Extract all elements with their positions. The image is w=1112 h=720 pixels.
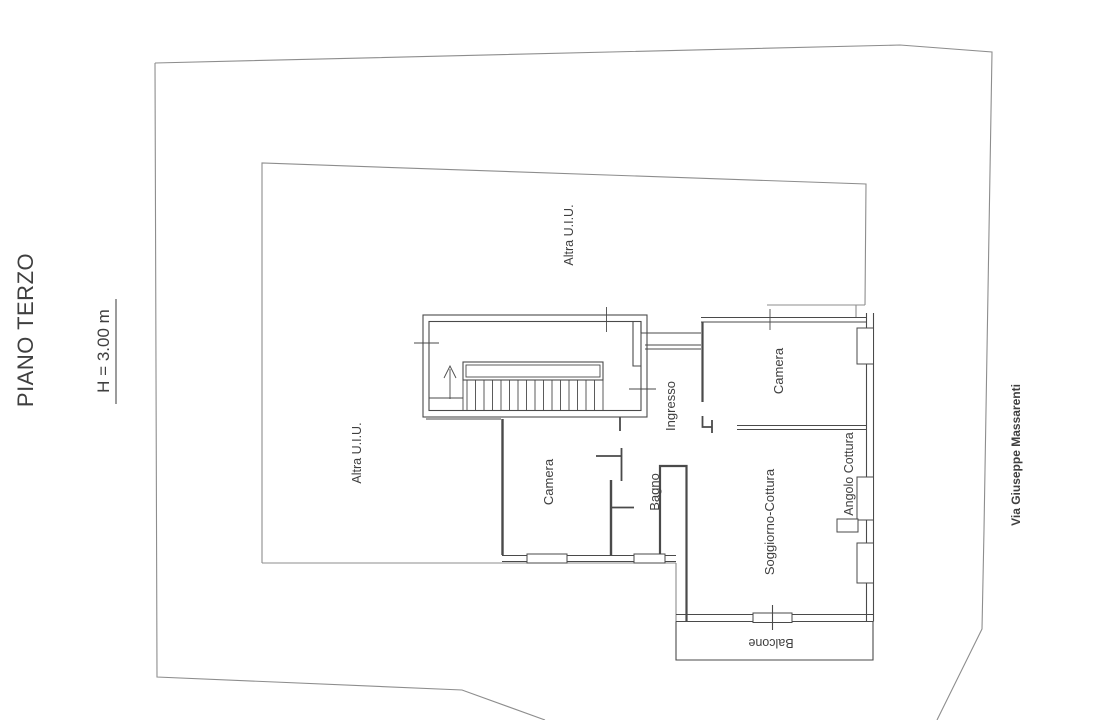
room-label-camera-middle: Camera — [541, 458, 556, 505]
window-bagno — [634, 554, 665, 563]
stairwell — [423, 315, 701, 417]
stair-treads — [467, 380, 603, 410]
height-note: H = 3.00 m — [94, 309, 113, 393]
window-soggiorno — [857, 543, 874, 583]
stair-landing-inner — [466, 365, 600, 377]
floor-plan-drawing: PIANO TERZO H = 3.00 m Altra U.I.U. Altr… — [0, 0, 1112, 720]
pilaster-angolo — [837, 519, 858, 532]
room-label-altra-uiu-left: Altra U.I.U. — [350, 422, 364, 483]
wall-camera-tr-bottom — [737, 426, 867, 430]
room-label-soggiorno-cottura: Soggiorno-Cottura — [762, 468, 777, 575]
room-label-ingresso: Ingresso — [663, 381, 678, 431]
street-label: Via Giuseppe Massarenti — [1009, 384, 1023, 526]
stair-direction-arrow — [444, 366, 456, 399]
room-label-angolo-cottura: Angolo Cottura — [842, 432, 856, 515]
ingresso-walls — [620, 345, 701, 431]
page-title: PIANO TERZO — [13, 253, 38, 407]
stair-left-compartment — [429, 380, 463, 410]
wall-soggiorno-left — [660, 466, 687, 622]
room-label-bagno: Bagno — [647, 473, 662, 511]
stairwell-step-wall — [641, 322, 701, 334]
room-label-balcone: Balcone — [748, 636, 793, 650]
stairwell-notch — [633, 322, 641, 367]
wall-camera-tr-top — [701, 318, 867, 323]
wall-corridor-top — [645, 345, 701, 349]
room-label-altra-uiu-top: Altra U.I.U. — [562, 204, 576, 265]
floor-plan-sheet: PIANO TERZO H = 3.00 m Altra U.I.U. Altr… — [0, 0, 1112, 720]
wall-bagno-jog-top — [596, 448, 622, 481]
window-angolo-cottura — [857, 477, 874, 520]
room-label-camera-top-right: Camera — [771, 347, 786, 394]
window-camera-tr — [857, 328, 874, 364]
door-jamb-camera-tr — [703, 416, 713, 433]
inner-outline-step — [767, 305, 865, 317]
window-camera-middle — [527, 554, 567, 563]
parcel-boundary-left-bottom — [155, 63, 545, 720]
